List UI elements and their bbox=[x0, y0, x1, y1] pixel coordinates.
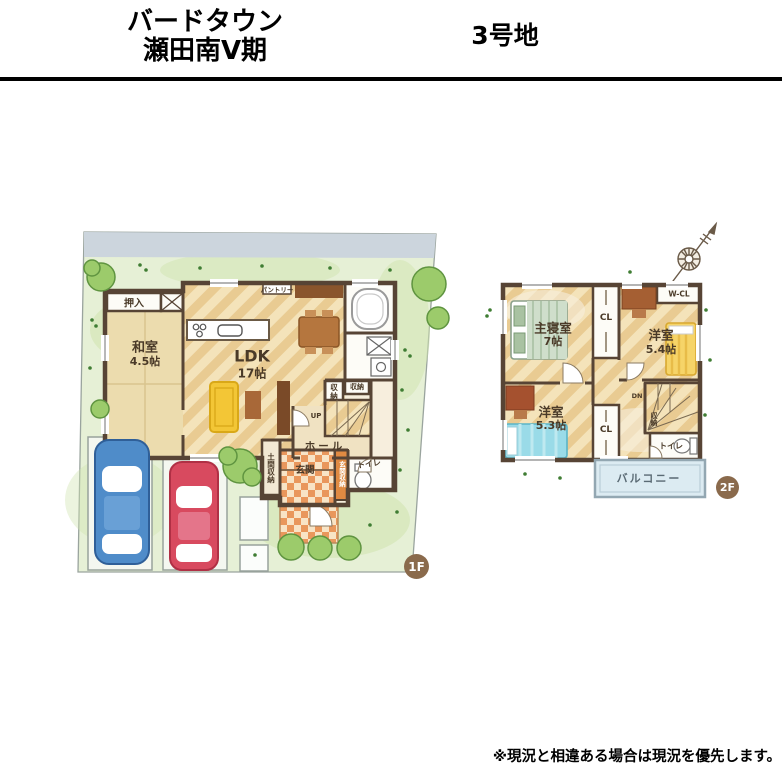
label-genkan: 玄関 bbox=[295, 462, 314, 476]
closet-x bbox=[161, 293, 183, 311]
label-master-size: 7帖 bbox=[544, 333, 563, 349]
floor2-badge: 2F bbox=[716, 476, 739, 499]
dining-table bbox=[299, 310, 339, 354]
car-red bbox=[170, 462, 218, 570]
label-balcony: バルコニー bbox=[617, 470, 682, 486]
room-genkan bbox=[280, 450, 335, 505]
label-down: DN bbox=[632, 392, 643, 400]
label-ldk-size: 17帖 bbox=[238, 365, 267, 382]
label-doma-storage: 土間収納 bbox=[266, 453, 277, 483]
label-toilet-2f: トイレ bbox=[659, 441, 683, 452]
label-storage-small: 収納 bbox=[350, 382, 364, 392]
label-closet2: CL bbox=[600, 425, 612, 435]
label-genkan-storage: 玄関収納 bbox=[337, 461, 347, 487]
label-pantry: パントリー bbox=[261, 284, 294, 294]
page-title: バードタウン 瀬田南Ⅴ期 bbox=[85, 8, 325, 66]
tv-board bbox=[277, 381, 290, 435]
cupboard bbox=[295, 285, 343, 298]
washer-pan bbox=[367, 337, 391, 355]
label-storage-2f: 収納 bbox=[649, 412, 659, 426]
title-line1: バードタウン bbox=[85, 8, 325, 37]
low-table bbox=[245, 391, 261, 419]
wash-sink bbox=[371, 358, 391, 376]
label-hall: ホール bbox=[305, 439, 346, 454]
label-bedroom2-size: 5.3帖 bbox=[536, 417, 567, 433]
title-line2: 瀬田南Ⅴ期 bbox=[85, 37, 325, 66]
label-washitsu-size: 4.5帖 bbox=[130, 353, 161, 369]
header-divider bbox=[0, 77, 782, 81]
lot-number: 3号地 bbox=[440, 22, 570, 50]
floor1-badge: 1F bbox=[404, 554, 429, 579]
floor1-plan bbox=[60, 222, 460, 587]
label-closet1: CL bbox=[600, 313, 612, 323]
sofa bbox=[210, 382, 238, 432]
label-bedroom1-size: 5.4帖 bbox=[646, 341, 677, 357]
car-blue bbox=[95, 440, 149, 564]
label-ldk: LDK bbox=[234, 347, 270, 366]
disclaimer-text: ※現況と相違ある場合は現況を優先します。 bbox=[493, 745, 781, 766]
label-oshiire: 押入 bbox=[124, 295, 144, 310]
floorplan-sheet: バードタウン 瀬田南Ⅴ期 3号地 bbox=[0, 0, 782, 767]
stairs-up bbox=[325, 400, 371, 436]
label-wcl: W-CL bbox=[668, 290, 689, 299]
sink-icon bbox=[218, 325, 242, 336]
label-storage-tall: 収納 bbox=[329, 384, 340, 401]
house-2f bbox=[499, 281, 704, 464]
road-band bbox=[84, 232, 436, 258]
label-up: UP bbox=[311, 412, 322, 420]
